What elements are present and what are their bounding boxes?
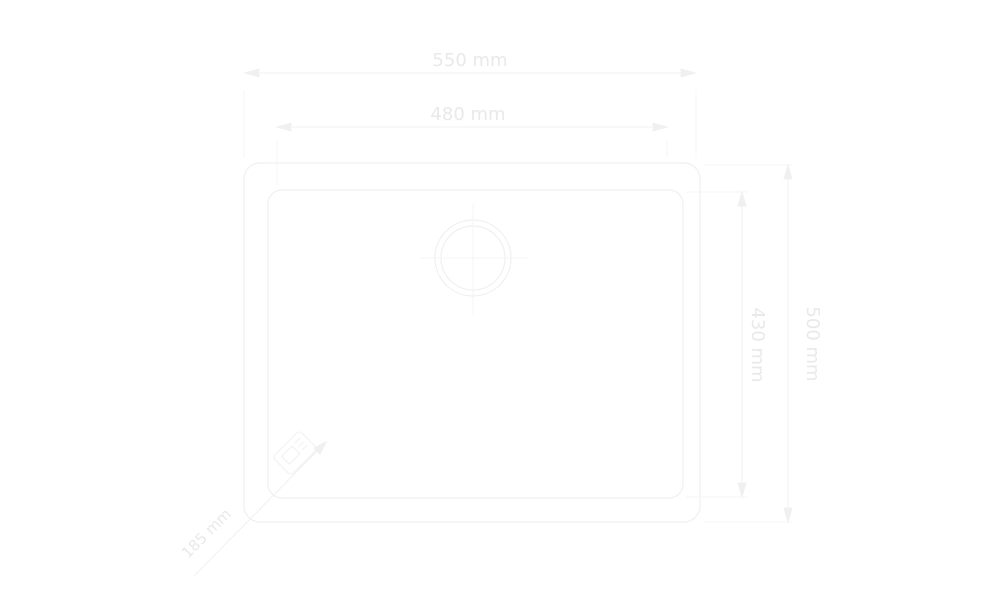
inner-depth-label: 430 mm <box>747 307 768 382</box>
sink-bowl-outline <box>268 190 683 498</box>
dimension-arrow-icon <box>784 508 792 522</box>
corner-stamp-icon <box>272 430 317 475</box>
dimension-arrow-icon <box>738 483 746 497</box>
dimension-inner-depth: 430 mm <box>686 192 768 497</box>
dimension-arrow-icon <box>245 69 259 77</box>
diagonal-note-label: 185 mm <box>178 505 235 562</box>
sink-outer-outline <box>244 163 700 522</box>
dimension-arrow-icon <box>784 165 792 179</box>
dimension-inner-width: 480 mm <box>277 104 667 185</box>
dimension-arrow-icon <box>277 123 291 131</box>
inner-width-label: 480 mm <box>430 104 505 125</box>
dimension-arrow-icon <box>738 192 746 206</box>
dimension-arrow-icon <box>681 69 695 77</box>
dimension-arrow-icon <box>653 123 667 131</box>
outer-depth-label: 500 mm <box>802 306 823 381</box>
sink-dimension-drawing: 550 mm 480 mm 430 mm 500 mm <box>0 0 1000 600</box>
drawing-canvas: 550 mm 480 mm 430 mm 500 mm <box>0 0 1000 600</box>
outer-width-label: 550 mm <box>432 50 507 71</box>
drain-crosshair-icon <box>420 203 528 315</box>
